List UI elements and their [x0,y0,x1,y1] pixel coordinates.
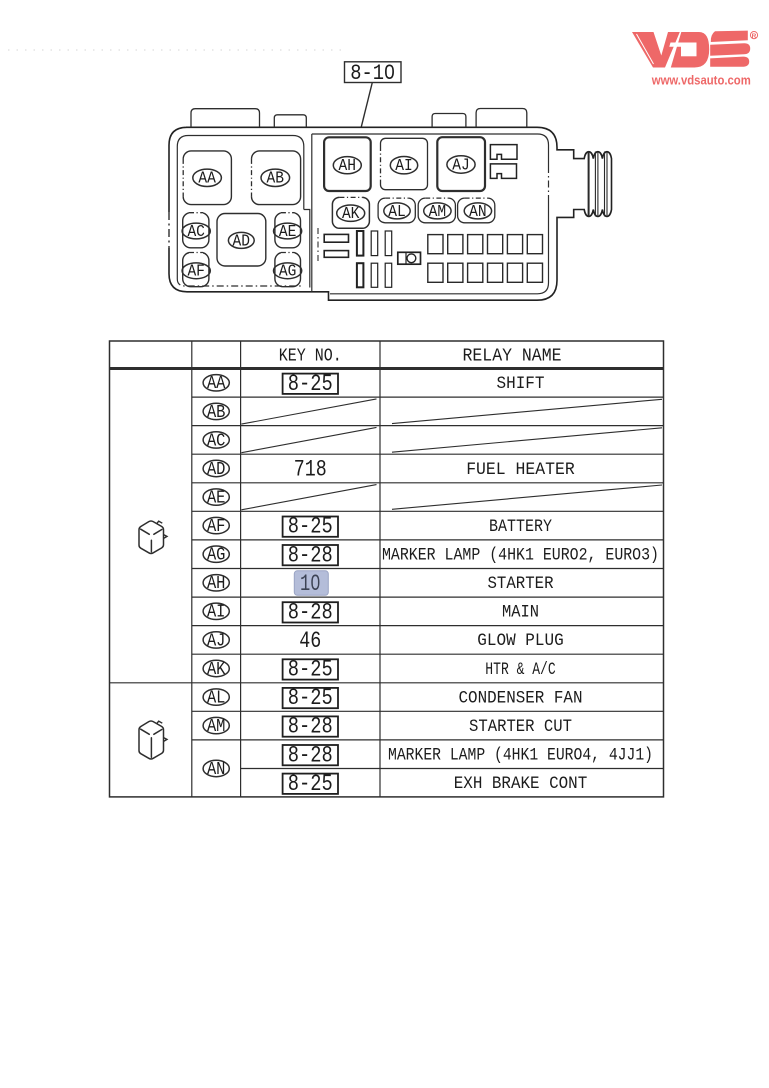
svg-text:AE: AE [279,223,297,241]
svg-text:8-25: 8-25 [288,371,333,398]
svg-text:MAIN: MAIN [502,603,539,623]
svg-text:AG: AG [207,546,226,566]
svg-text:RELAY NAME: RELAY NAME [463,344,562,366]
svg-text:AB: AB [207,403,226,423]
svg-text:AB: AB [267,170,285,188]
svg-text:8-28: 8-28 [288,742,333,769]
svg-text:8-25: 8-25 [288,657,333,684]
svg-text:MARKER LAMP (4HK1 EURO4, 4JJ1): MARKER LAMP (4HK1 EURO4, 4JJ1) [388,746,653,766]
svg-text:CONDENSER FAN: CONDENSER FAN [459,688,583,708]
svg-text:AH: AH [207,574,226,594]
svg-text:AD: AD [233,232,251,250]
svg-text:AC: AC [187,223,205,241]
svg-text:BATTERY: BATTERY [489,517,552,537]
svg-text:AI: AI [395,157,413,175]
svg-text:718: 718 [294,457,327,484]
svg-text:AA: AA [207,374,226,394]
svg-text:AG: AG [279,263,297,281]
svg-text:GLOW PLUG: GLOW PLUG [477,631,563,651]
svg-text:R: R [752,33,757,40]
svg-text:HTR & A/C: HTR & A/C [485,660,555,680]
svg-text:AN: AN [207,760,226,780]
svg-text:AK: AK [207,660,226,680]
svg-text:8-25: 8-25 [288,685,333,712]
svg-text:AM: AM [429,203,447,221]
svg-text:8-28: 8-28 [288,542,333,569]
svg-text:AM: AM [207,717,226,737]
svg-text:AN: AN [469,203,487,221]
svg-text:AI: AI [207,603,226,623]
svg-text:AJ: AJ [452,156,470,174]
svg-text:AK: AK [342,205,360,223]
svg-text:AJ: AJ [207,631,226,651]
svg-text:AF: AF [207,517,226,537]
svg-text:AC: AC [207,431,226,451]
svg-text:www.vdsauto.com: www.vdsauto.com [651,73,751,87]
svg-text:EXH BRAKE CONT: EXH BRAKE CONT [454,774,588,794]
svg-text:AL: AL [388,203,406,221]
svg-text:8-25: 8-25 [288,771,333,798]
svg-text:AH: AH [339,157,357,175]
svg-text:8-28: 8-28 [288,714,333,741]
svg-text:STARTER CUT: STARTER CUT [469,717,572,737]
svg-text:FUEL HEATER: FUEL HEATER [466,460,575,480]
svg-text:MARKER LAMP (4HK1 EURO2, EURO3: MARKER LAMP (4HK1 EURO2, EURO3) [382,546,659,566]
svg-text:AF: AF [187,263,205,281]
svg-text:AA: AA [198,170,216,188]
svg-text:STARTER: STARTER [488,574,554,594]
svg-text:AD: AD [207,460,226,480]
svg-text:8-25: 8-25 [288,514,333,541]
svg-text:SHIFT: SHIFT [497,374,545,394]
svg-text:AE: AE [207,489,226,509]
svg-text:KEY NO.: KEY NO. [279,344,342,366]
svg-text:46: 46 [299,628,321,655]
svg-text:AL: AL [207,689,226,709]
svg-text:8-28: 8-28 [288,599,333,626]
